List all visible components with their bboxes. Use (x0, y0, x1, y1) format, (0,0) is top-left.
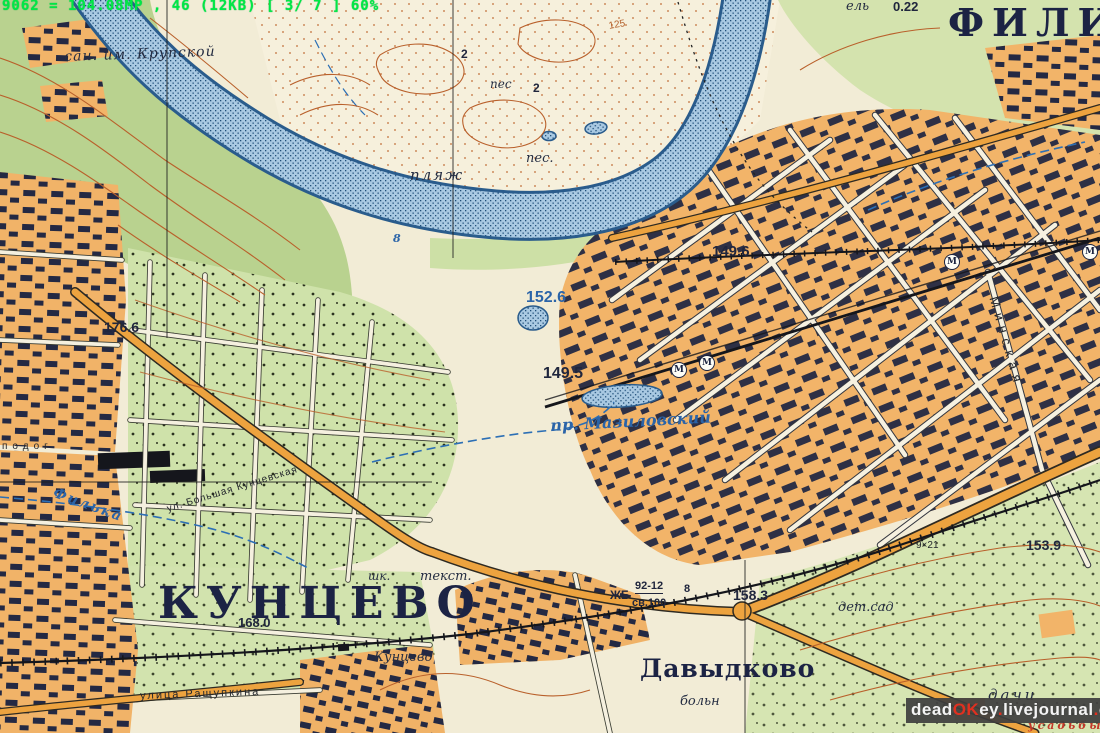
pond (518, 306, 548, 330)
watermark-text-ok: OK (953, 700, 980, 719)
scanner-status-text: 9062 = 104.08MP , 46 (12KB) [ 3/ 7 ] 60% (2, 0, 379, 14)
watermark-text-dead: dead (911, 700, 953, 719)
kuntsevo-station-symbol (338, 644, 349, 652)
watermark-text-livejournal: livejournal (1003, 700, 1094, 719)
watermark-text-ey: ey (979, 700, 998, 719)
map-viewport: ФИЛИКУНЦЕВОДавыдковосан. им. Крупскойпля… (0, 0, 1100, 733)
livejournal-watermark: deadOKey.livejournal.com (906, 698, 1100, 723)
map-artwork (0, 0, 1100, 733)
